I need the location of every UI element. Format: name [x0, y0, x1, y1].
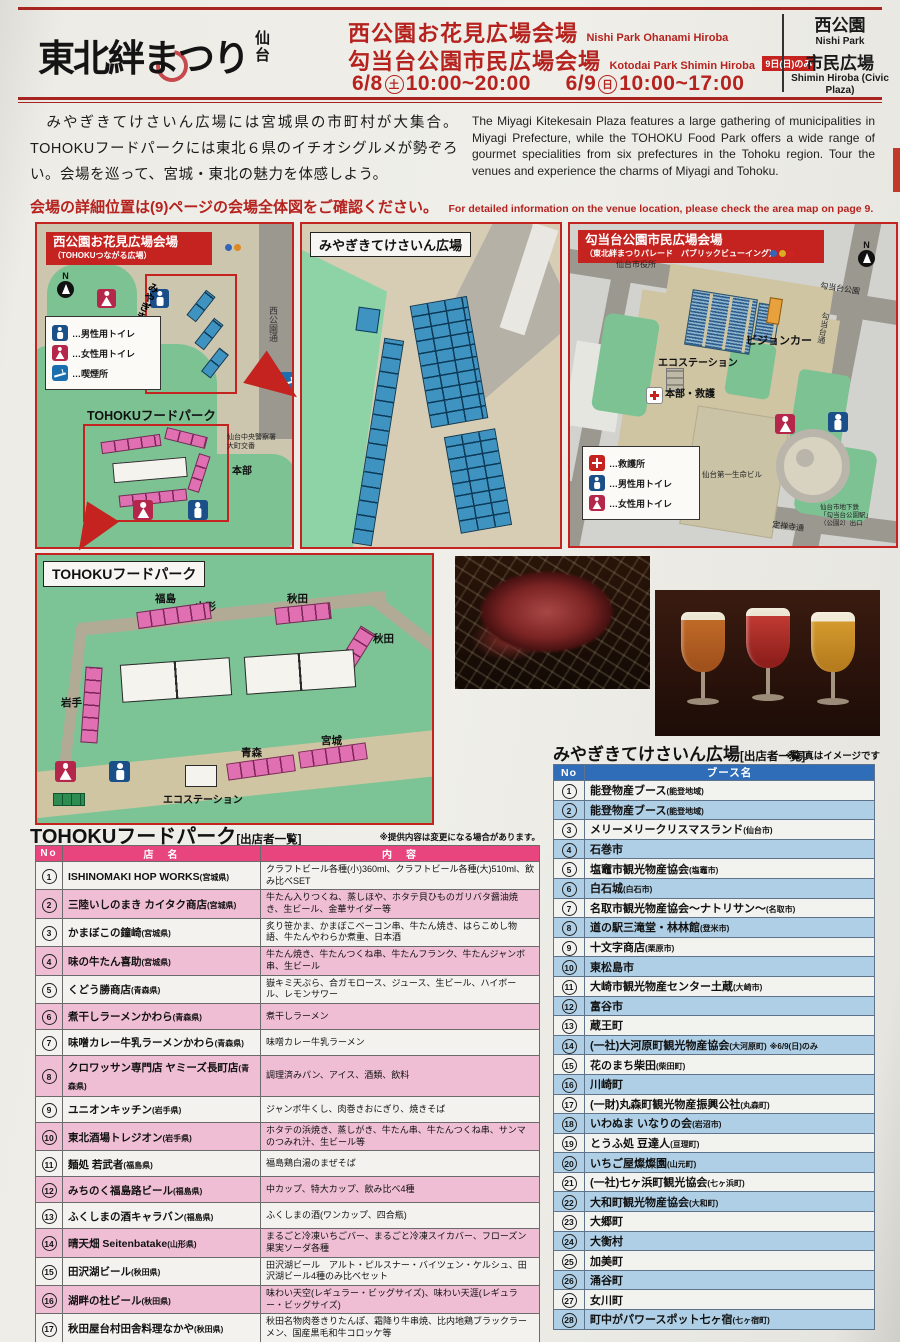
eco-station-block	[185, 765, 217, 787]
booth-name: 能登物産ブース	[590, 805, 666, 817]
venue2-en: Kotodai Park Shimin Hiroba	[609, 60, 754, 72]
shop-menu: 味わい天空(レギュラー・ビッグサイズ)、味わい天涯(レギュラー・ビッグサイズ)	[261, 1286, 540, 1314]
heading-text: みやぎきてけさいん広場	[553, 745, 740, 764]
booth-name: (一社)大河原町観光物産協会	[590, 1040, 729, 1052]
row-number: 4	[42, 954, 57, 969]
booth-row: 10 東松島市	[554, 957, 875, 977]
venue2-jp: 勾当台公園市民広場会場	[348, 49, 601, 74]
booth-name: メリーメリークリスマスランド	[590, 824, 743, 836]
booth-row: 4 石巻市	[554, 839, 875, 859]
shop-menu: 牛たん焼き、牛たんつくね串、牛たんフランク、牛たんジャンボ串、生ビール	[261, 947, 540, 975]
map-tohoku-foodpark: TOHOKUフードパーク 福島 山形 秋田 秋田 岩手 青森 宮城 エコステーシ…	[35, 553, 434, 825]
booth-column	[187, 453, 210, 493]
legend-icon	[52, 325, 68, 341]
event-dates: 6/8土10:00~20:00 6/9日10:00~17:00	[352, 72, 744, 96]
building-label: 仙台第一生命ビル	[702, 470, 762, 479]
booth-area: (栗原市)	[645, 944, 674, 953]
vendor-row: 8 クロワッサン専門店 ヤミーズ長町店(青森県) 調理済みパン、アイス、酒類、飲…	[36, 1055, 540, 1096]
shop-name: みちのく福島路ビール	[68, 1185, 173, 1197]
male-toilet-icon	[188, 500, 208, 520]
booth-name: 涌谷町	[590, 1275, 623, 1287]
vendor-row: 14 晴天畑 Seitenbatake(山形県) まるごと冷凍いちごバー、まるご…	[36, 1229, 540, 1257]
row-number: 6	[562, 882, 577, 897]
female-toilet-icon	[97, 289, 116, 308]
booth-row: 16 川崎町	[554, 1074, 875, 1094]
map-legend: …救護所 …男性用トイレ …女性用トイレ	[582, 446, 700, 520]
map-subtitle-text: （TOHOKUつながる広場）	[53, 251, 205, 261]
booth-row: 18 いわぬま いなりの会(岩沼市)	[554, 1114, 875, 1134]
map-legend: …男性用トイレ …女性用トイレ …喫煙所	[45, 316, 161, 390]
booth-row: 14 (一社)大河原町観光物産協会(大河原町)※6/9(日)のみ	[554, 1035, 875, 1055]
vendor-row: 2 三陸いしのまき カイタク商店(宮城県) 牛たん入りつくね、蒸しほや、ホタテ貝…	[36, 890, 540, 918]
booth-row: 8 道の駅三滝堂・林林館(登米市)	[554, 918, 875, 938]
booth-area: (大和町)	[689, 1199, 718, 1208]
legend-label: …救護所	[609, 457, 645, 470]
row-number: 11	[562, 980, 577, 995]
booth-name: 川崎町	[590, 1079, 623, 1091]
shop-prefecture: (宮城県)	[142, 929, 171, 938]
row-number: 27	[562, 1293, 577, 1308]
booth-name: 大和町観光物産協会	[590, 1197, 689, 1209]
row-number: 21	[562, 1176, 577, 1191]
shop-name: ISHINOMAKI HOP WORKS	[68, 871, 200, 883]
top-rule	[18, 7, 882, 10]
vendor-row: 16 湖畔の杜ビール(秋田県) 味わい天空(レギュラー・ビッグサイズ)、味わい天…	[36, 1286, 540, 1314]
intro-english: The Miyagi Kitekesain Plaza features a l…	[472, 113, 875, 179]
honbu-label: 本部	[232, 462, 252, 477]
map-title-text: 勾当台公園市民広場会場	[585, 233, 817, 249]
shop-prefecture: (秋田県)	[194, 1325, 223, 1334]
legend-label: …男性用トイレ	[609, 477, 672, 490]
row-number: 1	[42, 869, 57, 884]
shop-menu: 炙り笹かま、かまぼこベーコン串、牛たん焼き、はらこめし物語、牛たんやわらか煮重、…	[261, 918, 540, 946]
booth-name: いわぬま いなりの会	[590, 1118, 692, 1130]
date1-time: 10:00~20:00	[406, 72, 531, 95]
booth-row: 27 女川町	[554, 1290, 875, 1310]
foodpark-vendor-table: No 店 名 内 容 1 ISHINOMAKI HOP WORKS(宮城県) ク…	[35, 845, 540, 1342]
shop-menu: 調理済みパン、アイス、酒類、飲料	[261, 1055, 540, 1096]
first-aid-icon	[646, 387, 663, 404]
notice-jp: 会場の詳細位置は(9)ページの会場全体図をご確認ください。	[30, 199, 438, 216]
row-number: 3	[42, 926, 57, 941]
row-number: 15	[562, 1058, 577, 1073]
date2-prefix: 6/9	[566, 72, 597, 95]
booth-row: 21 (一社)七ヶ浜町観光協会(七ヶ浜町)	[554, 1172, 875, 1192]
shop-prefecture: (福島県)	[173, 1187, 202, 1196]
col-no: No	[36, 846, 63, 862]
compass-label: N	[858, 240, 875, 250]
street-label: 西公園通	[267, 306, 280, 342]
notice-en: For detailed information on the venue lo…	[449, 203, 874, 215]
grilled-meat-photo	[455, 556, 650, 689]
map-dot	[234, 244, 241, 251]
shop-menu: 福島鶏白湯のまぜそば	[261, 1151, 540, 1177]
shop-prefecture: (福島県)	[123, 1161, 152, 1170]
shop-prefecture: (山形県)	[167, 1240, 196, 1249]
col-contents: 内 容	[261, 846, 540, 862]
booth-area: (大河原町)	[729, 1042, 766, 1051]
compass-needle	[57, 281, 74, 298]
booth-row-green	[53, 793, 85, 806]
pavilion-block	[120, 657, 232, 703]
compass-label: N	[57, 271, 74, 281]
kitekesain-table-heading: みやぎきてけさいん広場[出店者一覧]	[553, 740, 805, 765]
row-number: 28	[562, 1313, 577, 1328]
booth-area: (能登地域)	[666, 807, 703, 816]
shop-menu: 秋田名物肉巻きりたんぽ、霜降り牛串焼、比内地鶏ブラックラーメン、国産黒毛和牛コロ…	[261, 1314, 540, 1342]
booth-name: いちご屋燦燦園	[590, 1158, 667, 1170]
legend-icon	[589, 495, 605, 511]
shop-menu: ふくしまの酒(ワンカップ、四合瓶)	[261, 1203, 540, 1229]
col-no: No	[554, 765, 585, 781]
legend-item: …男性用トイレ	[52, 325, 154, 341]
booth-name: 蔵王町	[590, 1020, 623, 1032]
shop-prefecture: (岩手県)	[163, 1134, 192, 1143]
map-title-kitekesain: みやぎきてけさいん広場	[310, 232, 471, 257]
shop-name: クロワッサン専門店 ヤミーズ長町店	[68, 1062, 238, 1074]
row-number: 12	[42, 1183, 57, 1198]
booth-row: 13 蔵王町	[554, 1016, 875, 1036]
row-number: 2	[562, 803, 577, 818]
booth-row: 20 いちご屋燦燦園(山元町)	[554, 1153, 875, 1173]
row-number: 24	[562, 1234, 577, 1249]
row-number: 19	[562, 1136, 577, 1151]
booth-name: 大郷町	[590, 1216, 623, 1228]
booth-row: 17 (一財)丸森町観光物産振興公社(丸森町)	[554, 1094, 875, 1114]
row-number: 20	[562, 1156, 577, 1171]
row-number: 6	[42, 1010, 57, 1025]
booth-row: 2 能登物産ブース(能登地域)	[554, 800, 875, 820]
booth-row: 23 大郷町	[554, 1212, 875, 1232]
location-notice: 会場の詳細位置は(9)ページの会場全体図をご確認ください。 For detail…	[30, 196, 890, 217]
row-number: 9	[42, 1103, 57, 1118]
female-toilet-icon	[55, 761, 76, 782]
booth-name: 道の駅三滝堂・林林館	[590, 922, 700, 934]
booth-row: 12 富谷市	[554, 996, 875, 1016]
vendor-row: 17 秋田屋台村田舎料理なかや(秋田県) 秋田名物肉巻きりたんぽ、霜降り牛串焼、…	[36, 1314, 540, 1342]
legend-item: …喫煙所	[52, 365, 154, 381]
header-divider	[782, 14, 784, 92]
booth-area: (名取市)	[766, 905, 795, 914]
booth-row: 24 大衡村	[554, 1231, 875, 1251]
roundabout-center	[796, 449, 814, 467]
sidebox-en-1: Nishi Park	[790, 36, 890, 48]
shop-name: 煮干しラーメンかわら	[68, 1011, 173, 1023]
date2-time: 10:00~17:00	[619, 72, 744, 95]
row-number: 1	[562, 784, 577, 799]
legend-icon	[589, 455, 605, 471]
shop-name: ふくしまの酒キャラバン	[68, 1211, 184, 1223]
compass-icon: N	[57, 271, 74, 303]
page-edge-mark	[893, 148, 900, 192]
row-number: 2	[42, 898, 57, 913]
compass-needle	[858, 250, 875, 267]
vendor-row: 13 ふくしまの酒キャラバン(福島県) ふくしまの酒(ワンカップ、四合瓶)	[36, 1203, 540, 1229]
booth-area: (山元町)	[667, 1160, 696, 1169]
booth-area: (塩竈市)	[689, 866, 718, 875]
booth-row: 25 加美町	[554, 1251, 875, 1271]
shop-name: 湖畔の杜ビール	[68, 1295, 142, 1307]
shop-prefecture: (福島県)	[184, 1213, 213, 1222]
booth-area: (白石市)	[623, 885, 652, 894]
pref-label-aomori: 青森	[241, 745, 262, 760]
eco-station-label: エコステーション	[163, 791, 243, 806]
booth-row: 19 とうふ処 豆達人(亘理町)	[554, 1133, 875, 1153]
compass-icon: N	[858, 240, 875, 272]
row-number: 7	[42, 1036, 57, 1051]
booth-row: 15 花のまち柴田(柴田町)	[554, 1055, 875, 1075]
shop-name: 麺処 若武者	[68, 1159, 123, 1171]
legend-item: …女性用トイレ	[52, 345, 154, 361]
pref-label-akita-right: 秋田	[373, 631, 394, 646]
row-number: 12	[562, 999, 577, 1014]
roundabout	[776, 429, 850, 503]
row-number: 4	[562, 843, 577, 858]
map-dot	[225, 244, 232, 251]
beer-glasses-photo	[655, 590, 880, 736]
map-title-nishi: 西公園お花見広場会場 （TOHOKUつながる広場）	[46, 232, 212, 265]
booth-name: 能登物産ブース	[590, 785, 666, 797]
vendor-row: 3 かまぼこの鐘崎(宮城県) 炙り笹かま、かまぼこベーコン串、牛たん焼き、はらこ…	[36, 918, 540, 946]
police-box-label: 仙台中央警察署 大町交番	[227, 434, 276, 452]
eco-station-label: エコステーション	[658, 354, 738, 369]
booth-area: (岩沼市)	[692, 1120, 721, 1129]
booth-bar	[201, 347, 229, 378]
foodpark-table-note: ※提供内容は変更になる場合があります。	[250, 831, 540, 843]
table-header-row: No 店 名 内 容	[36, 846, 540, 862]
row-number: 13	[562, 1019, 577, 1034]
sidebox-jp-1: 西公園	[790, 16, 890, 36]
row-number: 16	[562, 1078, 577, 1093]
booth-row: 3 メリーメリークリスマスランド(仙台市)	[554, 820, 875, 840]
row-number: 23	[562, 1215, 577, 1230]
booth-grid	[444, 428, 512, 534]
map-title-kotodai: 勾当台公園市民広場会場 （東北絆まつりパレード パブリックビューイング）	[578, 230, 824, 263]
row-number: 5	[42, 983, 57, 998]
traffic-dot	[788, 250, 795, 257]
path	[77, 591, 387, 636]
booth-area: (丸森町)	[740, 1101, 769, 1110]
vendor-row: 9 ユニオンキッチン(岩手県) ジャンボ牛くし、肉巻きおにぎり、焼きそば	[36, 1096, 540, 1122]
vendor-row: 12 みちのく福島路ビール(福島県) 中カップ、特大カップ、飲み比べ4種	[36, 1177, 540, 1203]
shop-menu: 中カップ、特大カップ、飲み比べ4種	[261, 1177, 540, 1203]
row-number: 3	[562, 823, 577, 838]
booth-name: 大衡村	[590, 1236, 623, 1248]
row-number: 13	[42, 1209, 57, 1224]
booth-area: (亘理町)	[670, 1140, 699, 1149]
row-number: 26	[562, 1274, 577, 1289]
pavilion-block	[244, 649, 356, 695]
row-number: 8	[42, 1069, 57, 1084]
shop-menu: 嶽キミ天ぷら、合ガモロース、ジュース、生ビール、ハイボール、レモンサワー	[261, 975, 540, 1003]
shop-menu: 味噌カレー牛乳ラーメン	[261, 1029, 540, 1055]
venue1-en: Nishi Park Ohanami Hiroba	[586, 32, 728, 44]
female-toilet-icon	[775, 414, 795, 434]
legend-label: …男性用トイレ	[72, 327, 135, 340]
booth-row: 9 十文字商店(栗原市)	[554, 937, 875, 957]
booth-name: (一財)丸森町観光物産振興公社	[590, 1099, 740, 1111]
booth-row: 11 大崎市観光物産センター土蔵(大崎市)	[554, 976, 875, 996]
shop-menu: ホタテの浜焼き、蒸しがき、牛たん串、牛たんつくね串、サンマのつみれ汁、生ビール等	[261, 1122, 540, 1150]
col-booth-name: ブース名	[585, 765, 875, 781]
map-kitekesain: みやぎきてけさいん広場	[300, 222, 562, 549]
row-number: 5	[562, 862, 577, 877]
shop-name: 田沢湖ビール	[68, 1266, 131, 1278]
row-number: 14	[42, 1236, 57, 1251]
vendor-row: 7 味噌カレー牛乳ラーメンかわら(青森県) 味噌カレー牛乳ラーメン	[36, 1029, 540, 1055]
row-number: 7	[562, 901, 577, 916]
male-toilet-icon	[109, 761, 130, 782]
vendor-row: 10 東北酒場トレジオン(岩手県) ホタテの浜焼き、蒸しがき、牛たん串、牛たんつ…	[36, 1122, 540, 1150]
shop-prefecture: (岩手県)	[152, 1106, 181, 1115]
table-header-row: No ブース名	[554, 765, 875, 781]
legend-icon	[52, 345, 68, 361]
foodpark-map-label: TOHOKUフードパーク	[87, 405, 216, 424]
venue1-jp: 西公園お花見広場会場	[348, 21, 578, 46]
booth-row: 7 名取市観光物産協会～ナトリサン～(名取市)	[554, 898, 875, 918]
booth-single	[355, 307, 380, 334]
female-toilet-icon	[133, 500, 153, 520]
heading-suffix: [出店者一覧]	[740, 751, 805, 763]
traffic-dot	[770, 250, 777, 257]
date1-day-icon: 土	[385, 75, 404, 94]
map-title-text: 西公園お花見広場会場	[53, 235, 205, 251]
booth-name: 名取市観光物産協会～ナトリサン～	[590, 903, 766, 915]
sidebox-en-2: Shimin Hiroba (Civic Plaza)	[790, 73, 890, 97]
row-number: 8	[562, 921, 577, 936]
pavilion-block	[112, 457, 187, 483]
booth-row: 22 大和町観光物産協会(大和町)	[554, 1192, 875, 1212]
shop-prefecture: (宮城県)	[142, 958, 171, 967]
shop-name: くどう勝商店	[68, 984, 131, 996]
booth-area: (柴田町)	[656, 1062, 685, 1071]
row-number: 25	[562, 1254, 577, 1269]
date1-prefix: 6/8	[352, 72, 383, 95]
booth-name: 白石城	[590, 883, 623, 895]
shop-prefecture: (青森県)	[215, 1039, 244, 1048]
traffic-dot	[779, 250, 786, 257]
shop-prefecture: (宮城県)	[207, 901, 236, 910]
shop-menu: ジャンボ牛くし、肉巻きおにぎり、焼きそば	[261, 1096, 540, 1122]
legend-item: …女性用トイレ	[589, 495, 693, 511]
row-number: 17	[562, 1097, 577, 1112]
subway-label: 仙台市地下鉄 「勾当台公園駅」 （公園2）出口	[820, 504, 872, 528]
vendor-row: 15 田沢湖ビール(秋田県) 田沢湖ビール アルト・ピルスナー・バイツェン・ケル…	[36, 1257, 540, 1285]
legend-item: …救護所	[589, 455, 693, 471]
date2-day-icon: 日	[598, 75, 617, 94]
booth-name: 東松島市	[590, 962, 634, 974]
row-number: 16	[42, 1293, 57, 1308]
booth-area: (大崎市)	[733, 983, 762, 992]
booth-name: 富谷市	[590, 1001, 623, 1013]
row-number: 11	[42, 1157, 57, 1172]
booth-name: 大崎市観光物産センター土蔵	[590, 981, 733, 993]
sidebox-jp-2: 市民広場	[790, 54, 890, 74]
vendor-row: 5 くどう勝商店(青森県) 嶽キミ天ぷら、合ガモロース、ジュース、生ビール、ハイ…	[36, 975, 540, 1003]
booth-area: (七ヶ浜町)	[707, 1179, 744, 1188]
shop-name: かまぼこの鐘崎	[68, 927, 142, 939]
row-number: 10	[42, 1130, 57, 1145]
booth-area: (登米市)	[700, 924, 729, 933]
shop-name: 味の牛たん喜助	[68, 956, 142, 968]
logo-title: 東北絆まつり	[38, 28, 248, 82]
shop-prefecture: (秋田県)	[142, 1297, 171, 1306]
header-bottom-rule	[18, 97, 882, 100]
booth-name: 十文字商店	[590, 942, 645, 954]
booth-row: 28 町中がパワースポット七ヶ宿(七ヶ宿町)	[554, 1310, 875, 1330]
shop-menu: クラフトビール各種(小)360ml、クラフトビール各種(大)510ml、飲み比べ…	[261, 862, 540, 890]
booth-name: 女川町	[590, 1295, 623, 1307]
pref-label-iwate: 岩手	[61, 695, 82, 710]
shop-menu: 田沢湖ビール アルト・ピルスナー・バイツェン・ケルシュ、田沢湖ビール4種のみ比べ…	[261, 1257, 540, 1285]
vision-car-label: ビジョンカー	[746, 332, 812, 348]
shop-prefecture: (青森県)	[173, 1013, 202, 1022]
shop-menu: まるごと冷凍いちごバー、まるごと冷凍スイカバー、フローズン果実ソーダ各種	[261, 1229, 540, 1257]
shop-name: 東北酒場トレジオン	[68, 1132, 163, 1144]
event-guide-page: 東北絆まつり 仙台 西公園お花見広場会場 Nishi Park Ohanami …	[0, 0, 900, 1342]
shop-name: ユニオンキッチン	[68, 1104, 152, 1116]
booth-area: (七ヶ宿町)	[732, 1316, 769, 1325]
vendor-row: 1 ISHINOMAKI HOP WORKS(宮城県) クラフトビール各種(小)…	[36, 862, 540, 890]
header-bottom-rule-thin	[18, 102, 882, 103]
booth-name: 町中がパワースポット七ヶ宿	[590, 1314, 732, 1326]
shop-name: 秋田屋台村田舎料理なかや	[68, 1323, 194, 1335]
legend-item: …男性用トイレ	[589, 475, 693, 491]
shop-name: 晴天畑 Seitenbatake	[68, 1238, 167, 1250]
festival-logo: 東北絆まつり 仙台	[38, 28, 272, 82]
map-kotodai-park: 勾当台公園市民広場会場 （東北絆まつりパレード パブリックビューイング） N 仙…	[568, 222, 898, 548]
map-title-foodpark: TOHOKUフードパーク	[43, 561, 205, 587]
booth-area: (仙台市)	[743, 826, 772, 835]
vendor-row: 6 煮干しラーメンかわら(青森県) 煮干しラーメン	[36, 1003, 540, 1029]
booth-area: (能登地域)	[666, 787, 703, 796]
row-number: 9	[562, 941, 577, 956]
shop-name: 味噌カレー牛乳ラーメンかわら	[68, 1037, 215, 1049]
row-number: 18	[562, 1117, 577, 1132]
booth-bar	[186, 290, 215, 323]
row-number: 10	[562, 960, 577, 975]
legend-label: …女性用トイレ	[609, 497, 672, 510]
row-number: 17	[42, 1322, 57, 1337]
booth-row: 1 能登物産ブース(能登地域)	[554, 781, 875, 801]
shop-menu: 煮干しラーメン	[261, 1003, 540, 1029]
row-number: 22	[562, 1195, 577, 1210]
booth-note: ※6/9(日)のみ	[770, 1042, 818, 1051]
pref-label-fukushima: 福島	[155, 591, 176, 606]
booth-name: 塩竈市観光物産協会	[590, 864, 689, 876]
col-shop-name: 店 名	[63, 846, 261, 862]
vendor-row: 11 麺処 若武者(福島県) 福島鶏白湯のまぜそば	[36, 1151, 540, 1177]
shop-menu: 牛たん入りつくね、蒸しほや、ホタテ貝ひものガリバタ醤油焼き、生ビール、金華サイダ…	[261, 890, 540, 918]
booth-name: 花のまち柴田	[590, 1060, 656, 1072]
honbu-label: 本部・救護	[665, 385, 715, 400]
booth-bar	[194, 318, 223, 351]
shop-prefecture: (秋田県)	[131, 1268, 160, 1277]
booth-row	[164, 427, 208, 449]
logo-subtitle: 仙台	[251, 30, 272, 64]
legend-icon	[52, 365, 68, 381]
city-hall-label: 仙台市役所	[616, 260, 656, 270]
shop-prefecture: (宮城県)	[200, 873, 229, 882]
booth-name: とうふ処 豆達人	[590, 1138, 670, 1150]
legend-label: …喫煙所	[72, 367, 108, 380]
booth-row: 5 塩竈市観光物産協会(塩竈市)	[554, 859, 875, 879]
kitekesain-vendor-table: No ブース名 1 能登物産ブース(能登地域) 2 能登物産ブース(能登地域) …	[553, 764, 875, 1330]
legend-label: …女性用トイレ	[72, 347, 135, 360]
shop-name: 三陸いしのまき カイタク商店	[68, 899, 207, 911]
booth-name: 加美町	[590, 1256, 623, 1268]
shop-prefecture: (青森県)	[131, 986, 160, 995]
